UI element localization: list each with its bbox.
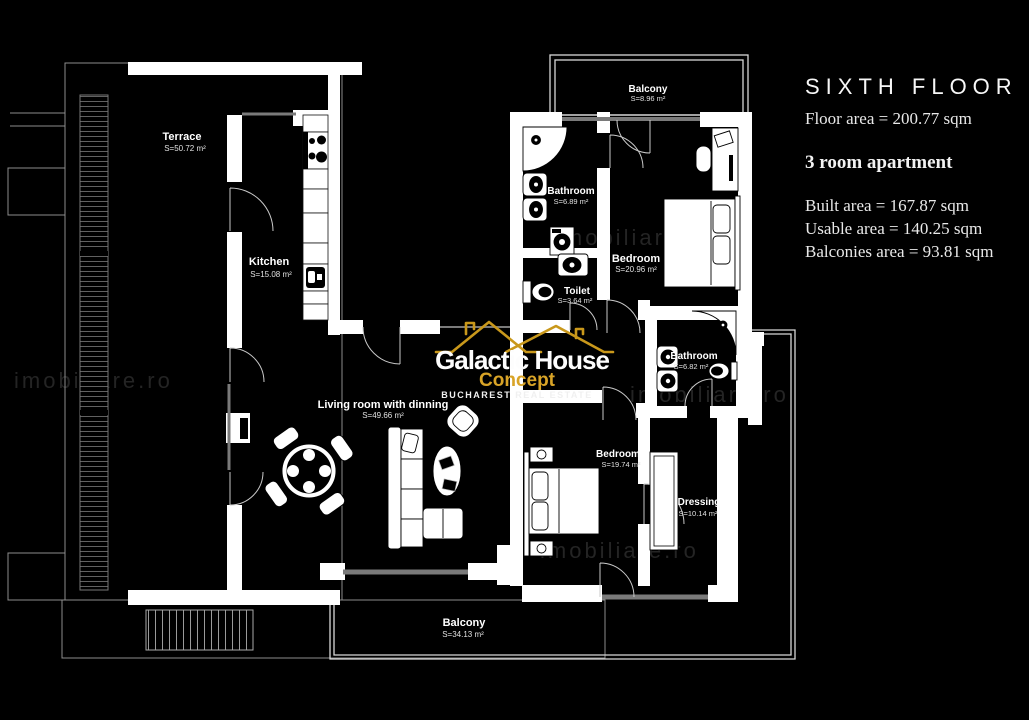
svg-text:Dressing: Dressing — [678, 497, 721, 508]
svg-text:Concept: Concept — [479, 370, 556, 391]
svg-text:Balcony: Balcony — [443, 617, 487, 629]
svg-text:S=19.74 m²: S=19.74 m² — [602, 460, 641, 469]
room-label-balcony-bottom: BalconyS=34.13 m² — [442, 617, 486, 639]
svg-text:S=6.89 m²: S=6.89 m² — [554, 197, 589, 206]
svg-text:S=6.82 m²: S=6.82 m² — [674, 362, 709, 371]
room-label-balcony-top: BalconyS=8.96 m² — [629, 84, 668, 103]
headboard — [524, 452, 529, 556]
room-label-bedroom-2: BedroomS=19.74 m² — [596, 449, 641, 469]
pillow-icon — [713, 205, 730, 233]
svg-text:Terrace: Terrace — [163, 131, 202, 143]
toilet-icon — [523, 281, 531, 303]
floor-title: SIXTH FLOOR — [805, 74, 1020, 100]
info-panel: SIXTH FLOOR Floor area = 200.77 sqm 3 ro… — [805, 74, 1020, 262]
svg-text:Bedroom: Bedroom — [612, 253, 661, 265]
room-label-bathroom-1: BathroomS=6.89 m² — [547, 186, 594, 206]
room-label-kitchen: KitchenS=15.08 m² — [249, 256, 292, 279]
kitchen-sink-icon — [306, 267, 325, 288]
svg-text:S=8.96 m²: S=8.96 m² — [631, 94, 666, 103]
apartment-type: 3 room apartment — [805, 152, 1020, 174]
svg-text:S=15.08 m²: S=15.08 m² — [250, 270, 292, 279]
svg-text:S=50.72 m²: S=50.72 m² — [164, 144, 206, 153]
room-label-terrace: TerraceS=50.72 m² — [163, 131, 207, 153]
room-label-bedroom-1: BedroomS=20.96 m² — [612, 253, 661, 274]
svg-text:S=20.96 m²: S=20.96 m² — [615, 265, 657, 274]
svg-text:S=3.64 m²: S=3.64 m² — [558, 296, 593, 305]
room-label-dressing: DressingS=10.14 m² — [678, 497, 721, 518]
svg-text:Bathroom: Bathroom — [670, 351, 717, 362]
usable-area: Usable area = 140.25 sqm — [805, 219, 1020, 239]
svg-text:S=10.14 m²: S=10.14 m² — [679, 509, 718, 518]
svg-text:Bedroom: Bedroom — [596, 449, 640, 460]
built-area: Built area = 167.87 sqm — [805, 196, 1020, 216]
floorplan-page: imobiliare.ro imobiliare.ro imobiliare.r… — [0, 0, 1029, 720]
chair-icon — [696, 146, 711, 172]
pillow-icon — [532, 502, 548, 530]
svg-text:BUCHAREST REAL ESTATE: BUCHAREST REAL ESTATE — [441, 390, 593, 400]
toilet-icon — [731, 362, 737, 380]
svg-text:Kitchen: Kitchen — [249, 256, 290, 268]
svg-text:S=34.13 m²: S=34.13 m² — [442, 630, 484, 639]
kitchen-counter — [303, 115, 328, 320]
svg-text:Living room with dinning: Living room with dinning — [318, 399, 449, 411]
balconies-area: Balconies area = 93.81 sqm — [805, 242, 1020, 262]
floor-area: Floor area = 200.77 sqm — [805, 109, 1020, 129]
headboard — [735, 196, 740, 290]
sofa-icon — [388, 427, 401, 549]
radiator-inner — [240, 418, 248, 439]
pillow-icon — [532, 472, 548, 500]
svg-text:Bathroom: Bathroom — [547, 186, 594, 197]
pillow-icon — [713, 236, 730, 264]
dressing-wardrobe — [650, 452, 678, 550]
svg-text:S=49.66 m²: S=49.66 m² — [362, 411, 404, 420]
